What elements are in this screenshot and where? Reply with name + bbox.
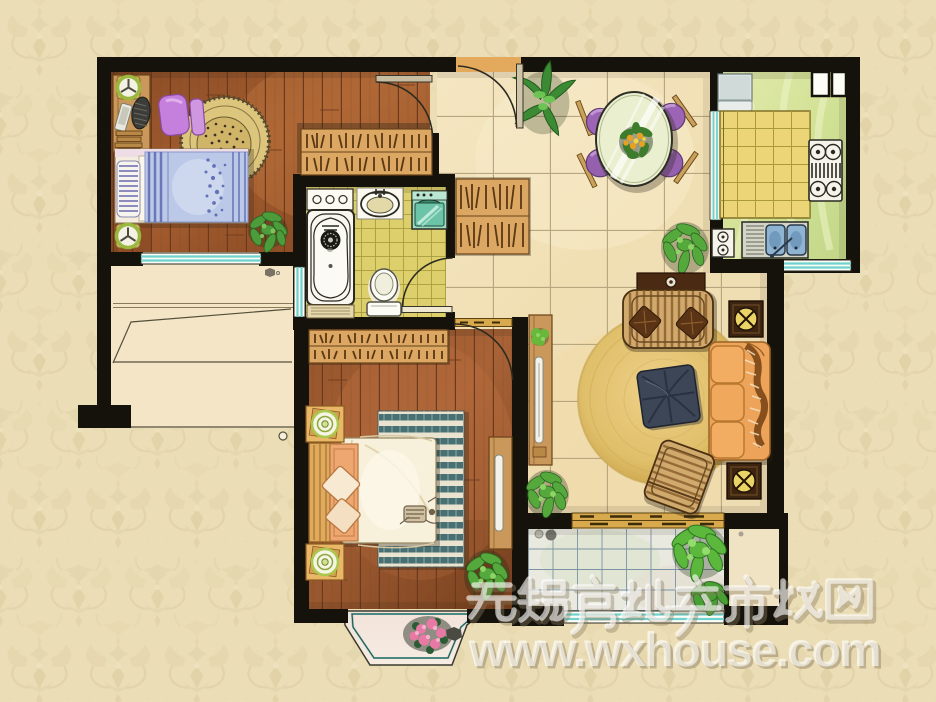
svg-text:www.wxhouse.com: www.wxhouse.com bbox=[468, 624, 880, 677]
